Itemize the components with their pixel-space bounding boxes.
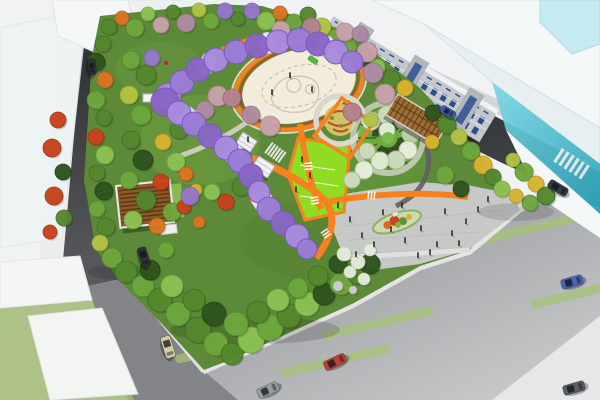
tree (161, 275, 183, 297)
tree (87, 91, 105, 109)
tree (153, 17, 169, 33)
tree (149, 218, 165, 234)
tree (247, 301, 269, 323)
wisteria-blob (224, 40, 248, 64)
wisteria-blob (297, 239, 317, 259)
tree (202, 302, 226, 326)
tree (217, 3, 233, 19)
tree (155, 134, 171, 150)
tree (43, 225, 57, 239)
person-head (451, 230, 453, 232)
tree (55, 164, 71, 180)
tree (45, 187, 63, 205)
tree (120, 171, 138, 189)
person-head (458, 240, 460, 242)
tree (153, 174, 169, 190)
tree (231, 12, 245, 26)
tree (349, 286, 357, 294)
tree (193, 216, 205, 228)
tree (436, 166, 454, 184)
tree (50, 112, 66, 128)
person-head (271, 89, 273, 91)
tree (183, 289, 205, 311)
tree (267, 289, 289, 311)
tree (136, 190, 156, 210)
person-head (247, 136, 249, 138)
tree (89, 201, 105, 217)
tree (126, 19, 144, 37)
tree (308, 266, 328, 286)
tree (95, 36, 111, 52)
tree (204, 184, 220, 200)
person-head (429, 249, 431, 251)
person-head (361, 232, 363, 234)
tree (97, 72, 113, 88)
tree (177, 14, 195, 32)
tree (358, 273, 370, 285)
tree (95, 182, 113, 200)
tree (352, 26, 368, 42)
tree (88, 129, 104, 145)
tree (343, 103, 361, 121)
tree (166, 5, 180, 19)
person-head (390, 226, 392, 228)
tree (56, 210, 72, 226)
person-head (355, 251, 357, 253)
tree (133, 150, 153, 170)
tree (244, 3, 260, 19)
car-rear-window (90, 69, 95, 73)
tree (141, 7, 155, 21)
tree (336, 23, 354, 41)
tree (203, 13, 219, 29)
tree (144, 50, 160, 66)
red-marker (164, 61, 168, 65)
tree (96, 146, 114, 164)
person-head (436, 241, 438, 243)
render-image (0, 0, 600, 400)
tree (223, 89, 241, 107)
tree (136, 65, 156, 85)
person-head (487, 196, 489, 198)
person-head (301, 156, 303, 158)
tree (509, 189, 523, 203)
tree (43, 139, 61, 157)
tree (224, 312, 248, 336)
tree (158, 242, 174, 258)
wisteria-blob (341, 51, 363, 73)
tree (242, 106, 260, 124)
person-head (382, 209, 384, 211)
person-head (373, 241, 375, 243)
tree (425, 135, 439, 149)
tree (451, 129, 467, 145)
car-windshield (89, 63, 95, 69)
tree (122, 131, 140, 149)
tree (124, 211, 142, 229)
park-masterplan-svg (0, 0, 600, 400)
tree (115, 11, 129, 25)
tree (344, 266, 356, 278)
person-head (349, 216, 351, 218)
person-head (309, 172, 311, 174)
person-head (295, 186, 297, 188)
tree (337, 247, 351, 261)
wisteria-blob (266, 30, 290, 54)
person-head (444, 208, 446, 210)
tree (453, 181, 469, 197)
tree (425, 105, 441, 121)
white-building-lower-left (0, 256, 92, 308)
tree (375, 84, 395, 104)
tree (363, 63, 383, 83)
person-head (417, 252, 419, 254)
person-head (420, 225, 422, 227)
tree (179, 167, 193, 181)
tree (192, 3, 206, 17)
tree (181, 187, 199, 205)
tree (101, 19, 117, 35)
person-head (289, 72, 291, 74)
person-head (465, 218, 467, 220)
tree (462, 142, 480, 160)
tree (120, 86, 138, 104)
person-head (311, 86, 313, 88)
tree (397, 80, 413, 96)
person-head (337, 202, 339, 204)
person-head (477, 206, 479, 208)
tree (333, 281, 343, 291)
person-head (404, 237, 406, 239)
wisteria-blob (245, 34, 269, 58)
tree (97, 218, 115, 236)
tree (131, 105, 151, 125)
tree (260, 116, 280, 136)
tree (288, 278, 308, 298)
person-head (401, 202, 403, 204)
tree (89, 165, 105, 181)
tree (122, 51, 140, 69)
tree (494, 181, 510, 197)
tree (92, 235, 108, 251)
tree (96, 110, 112, 126)
tree (364, 113, 378, 127)
tree (273, 6, 287, 20)
